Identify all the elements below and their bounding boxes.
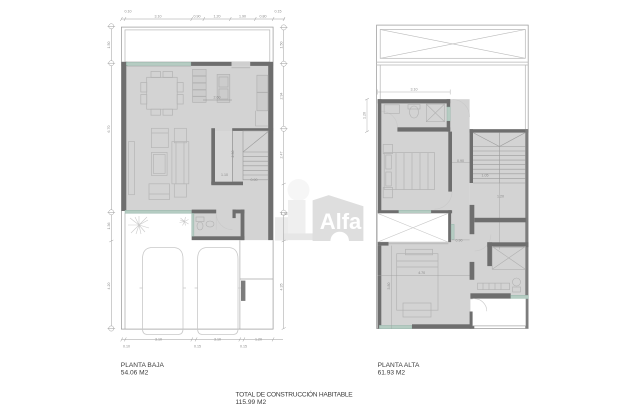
svg-text:PLANTA BAJA: PLANTA BAJA bbox=[121, 362, 165, 369]
svg-text:1.36: 1.36 bbox=[107, 223, 111, 230]
svg-text:2.60: 2.60 bbox=[214, 96, 221, 100]
svg-text:0.10: 0.10 bbox=[125, 10, 132, 14]
svg-text:3.10: 3.10 bbox=[155, 15, 162, 19]
svg-text:1.10: 1.10 bbox=[221, 173, 228, 177]
svg-text:Alfa: Alfa bbox=[320, 209, 362, 234]
svg-text:3.10: 3.10 bbox=[411, 88, 418, 92]
svg-text:1.90: 1.90 bbox=[239, 15, 246, 19]
svg-text:0.90: 0.90 bbox=[457, 159, 464, 163]
svg-text:1.20: 1.20 bbox=[214, 15, 221, 19]
svg-text:4.70: 4.70 bbox=[418, 271, 425, 275]
svg-text:1.36: 1.36 bbox=[281, 212, 288, 216]
svg-text:0.90: 0.90 bbox=[194, 15, 201, 19]
svg-text:2.94: 2.94 bbox=[279, 93, 283, 100]
svg-text:0.80: 0.80 bbox=[260, 15, 267, 19]
svg-text:0.15: 0.15 bbox=[194, 344, 201, 348]
svg-text:3.10: 3.10 bbox=[214, 338, 221, 342]
svg-text:54.06 M2: 54.06 M2 bbox=[121, 370, 149, 377]
svg-text:1.20: 1.20 bbox=[255, 338, 262, 342]
svg-text:1.20: 1.20 bbox=[497, 195, 504, 199]
svg-text:1.50: 1.50 bbox=[279, 42, 283, 49]
svg-text:PLANTA ALTA: PLANTA ALTA bbox=[378, 362, 420, 369]
svg-text:2.30: 2.30 bbox=[231, 151, 235, 158]
svg-text:115.99 M2: 115.99 M2 bbox=[236, 399, 267, 406]
svg-text:0.15: 0.15 bbox=[275, 10, 282, 14]
svg-text:6.70: 6.70 bbox=[107, 126, 111, 133]
svg-text:4.20: 4.20 bbox=[107, 283, 111, 290]
svg-text:3.10: 3.10 bbox=[155, 338, 162, 342]
svg-text:TOTAL DE CONSTRUCCIÓN HABITABL: TOTAL DE CONSTRUCCIÓN HABITABLE bbox=[236, 390, 354, 399]
svg-text:1.20: 1.20 bbox=[363, 112, 367, 119]
svg-text:0.15: 0.15 bbox=[240, 344, 247, 348]
svg-text:1.50: 1.50 bbox=[107, 42, 111, 49]
svg-text:61.93 M2: 61.93 M2 bbox=[378, 370, 406, 377]
svg-text:2.47: 2.47 bbox=[279, 152, 283, 159]
svg-text:0.90: 0.90 bbox=[456, 239, 463, 243]
svg-text:4.35: 4.35 bbox=[279, 284, 283, 291]
svg-text:0.90: 0.90 bbox=[251, 178, 258, 182]
svg-text:1.05: 1.05 bbox=[482, 174, 489, 178]
svg-text:3.80: 3.80 bbox=[387, 283, 391, 290]
svg-text:0.10: 0.10 bbox=[123, 344, 130, 348]
